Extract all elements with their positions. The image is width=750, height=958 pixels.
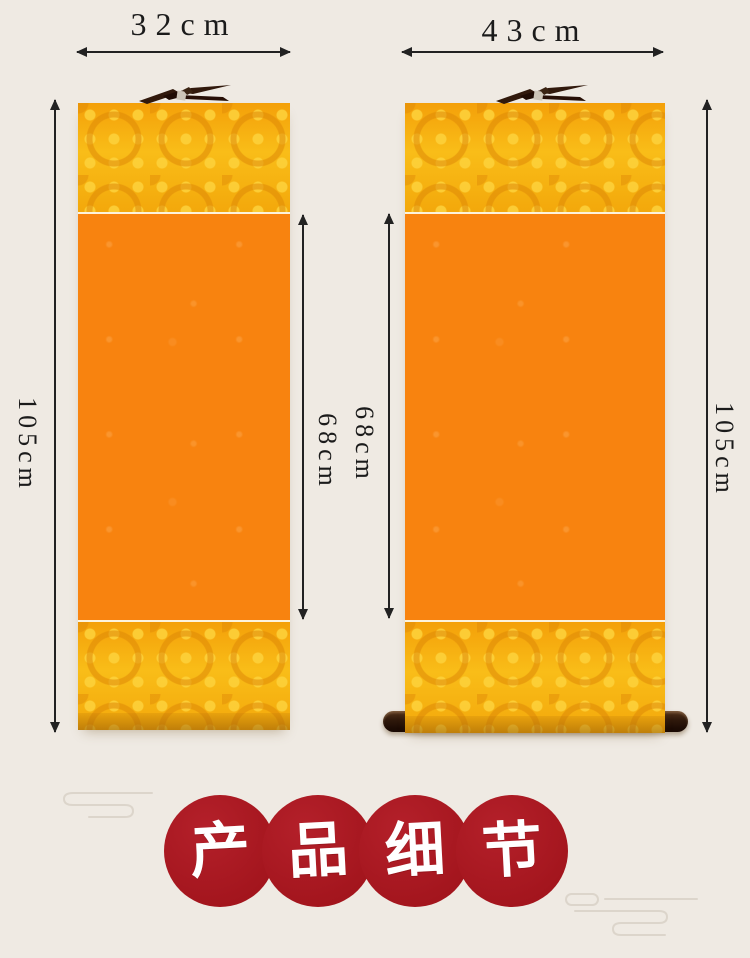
banner-character: 产 (188, 819, 251, 882)
cloud-motif-icon (565, 890, 700, 946)
outer-height-dimension-arrow-right (706, 100, 708, 732)
width-dimension-label-right: 43cm (405, 12, 665, 49)
banner-circle: 品 (262, 795, 374, 907)
hanging-cord-knot-icon (133, 84, 237, 106)
narrow-scroll-bottom-brocade (78, 620, 290, 730)
banner-circle: 产 (164, 795, 276, 907)
narrow-scroll-blank-panel (78, 214, 290, 620)
wide-scroll (405, 103, 665, 733)
narrow-scroll (78, 103, 290, 730)
cloud-motif-icon (55, 786, 160, 828)
outer-height-dimension-arrow-left (54, 100, 56, 732)
wide-scroll-blank-panel (405, 214, 665, 620)
product-dimensions-figure: 32cm 43cm 105cm 68cm 68cm 105cm (0, 0, 750, 958)
wide-scroll-bottom-shade (405, 716, 665, 733)
wide-scroll-top-brocade (405, 103, 665, 214)
inner-height-dimension-label-left: 68cm (312, 394, 342, 510)
outer-height-dimension-label-right: 105cm (709, 392, 739, 508)
banner-character: 细 (383, 819, 446, 882)
banner-character: 节 (480, 819, 543, 882)
wide-scroll-bottom-brocade (405, 620, 665, 733)
inner-height-dimension-arrow-left (302, 215, 304, 619)
outer-height-dimension-label-left: 105cm (12, 387, 42, 503)
width-dimension-label-left: 32cm (78, 6, 290, 43)
width-dimension-arrow-right (402, 51, 663, 53)
banner-circle: 节 (456, 795, 568, 907)
narrow-scroll-top-brocade (78, 103, 290, 214)
banner-circle: 细 (359, 795, 471, 907)
inner-height-dimension-label-right: 68cm (349, 387, 379, 503)
width-dimension-arrow-left (77, 51, 290, 53)
inner-height-dimension-arrow-right (388, 214, 390, 618)
hanging-cord-knot-icon (490, 84, 594, 106)
banner-character: 品 (286, 819, 349, 882)
narrow-scroll-bottom-shade (78, 713, 290, 730)
